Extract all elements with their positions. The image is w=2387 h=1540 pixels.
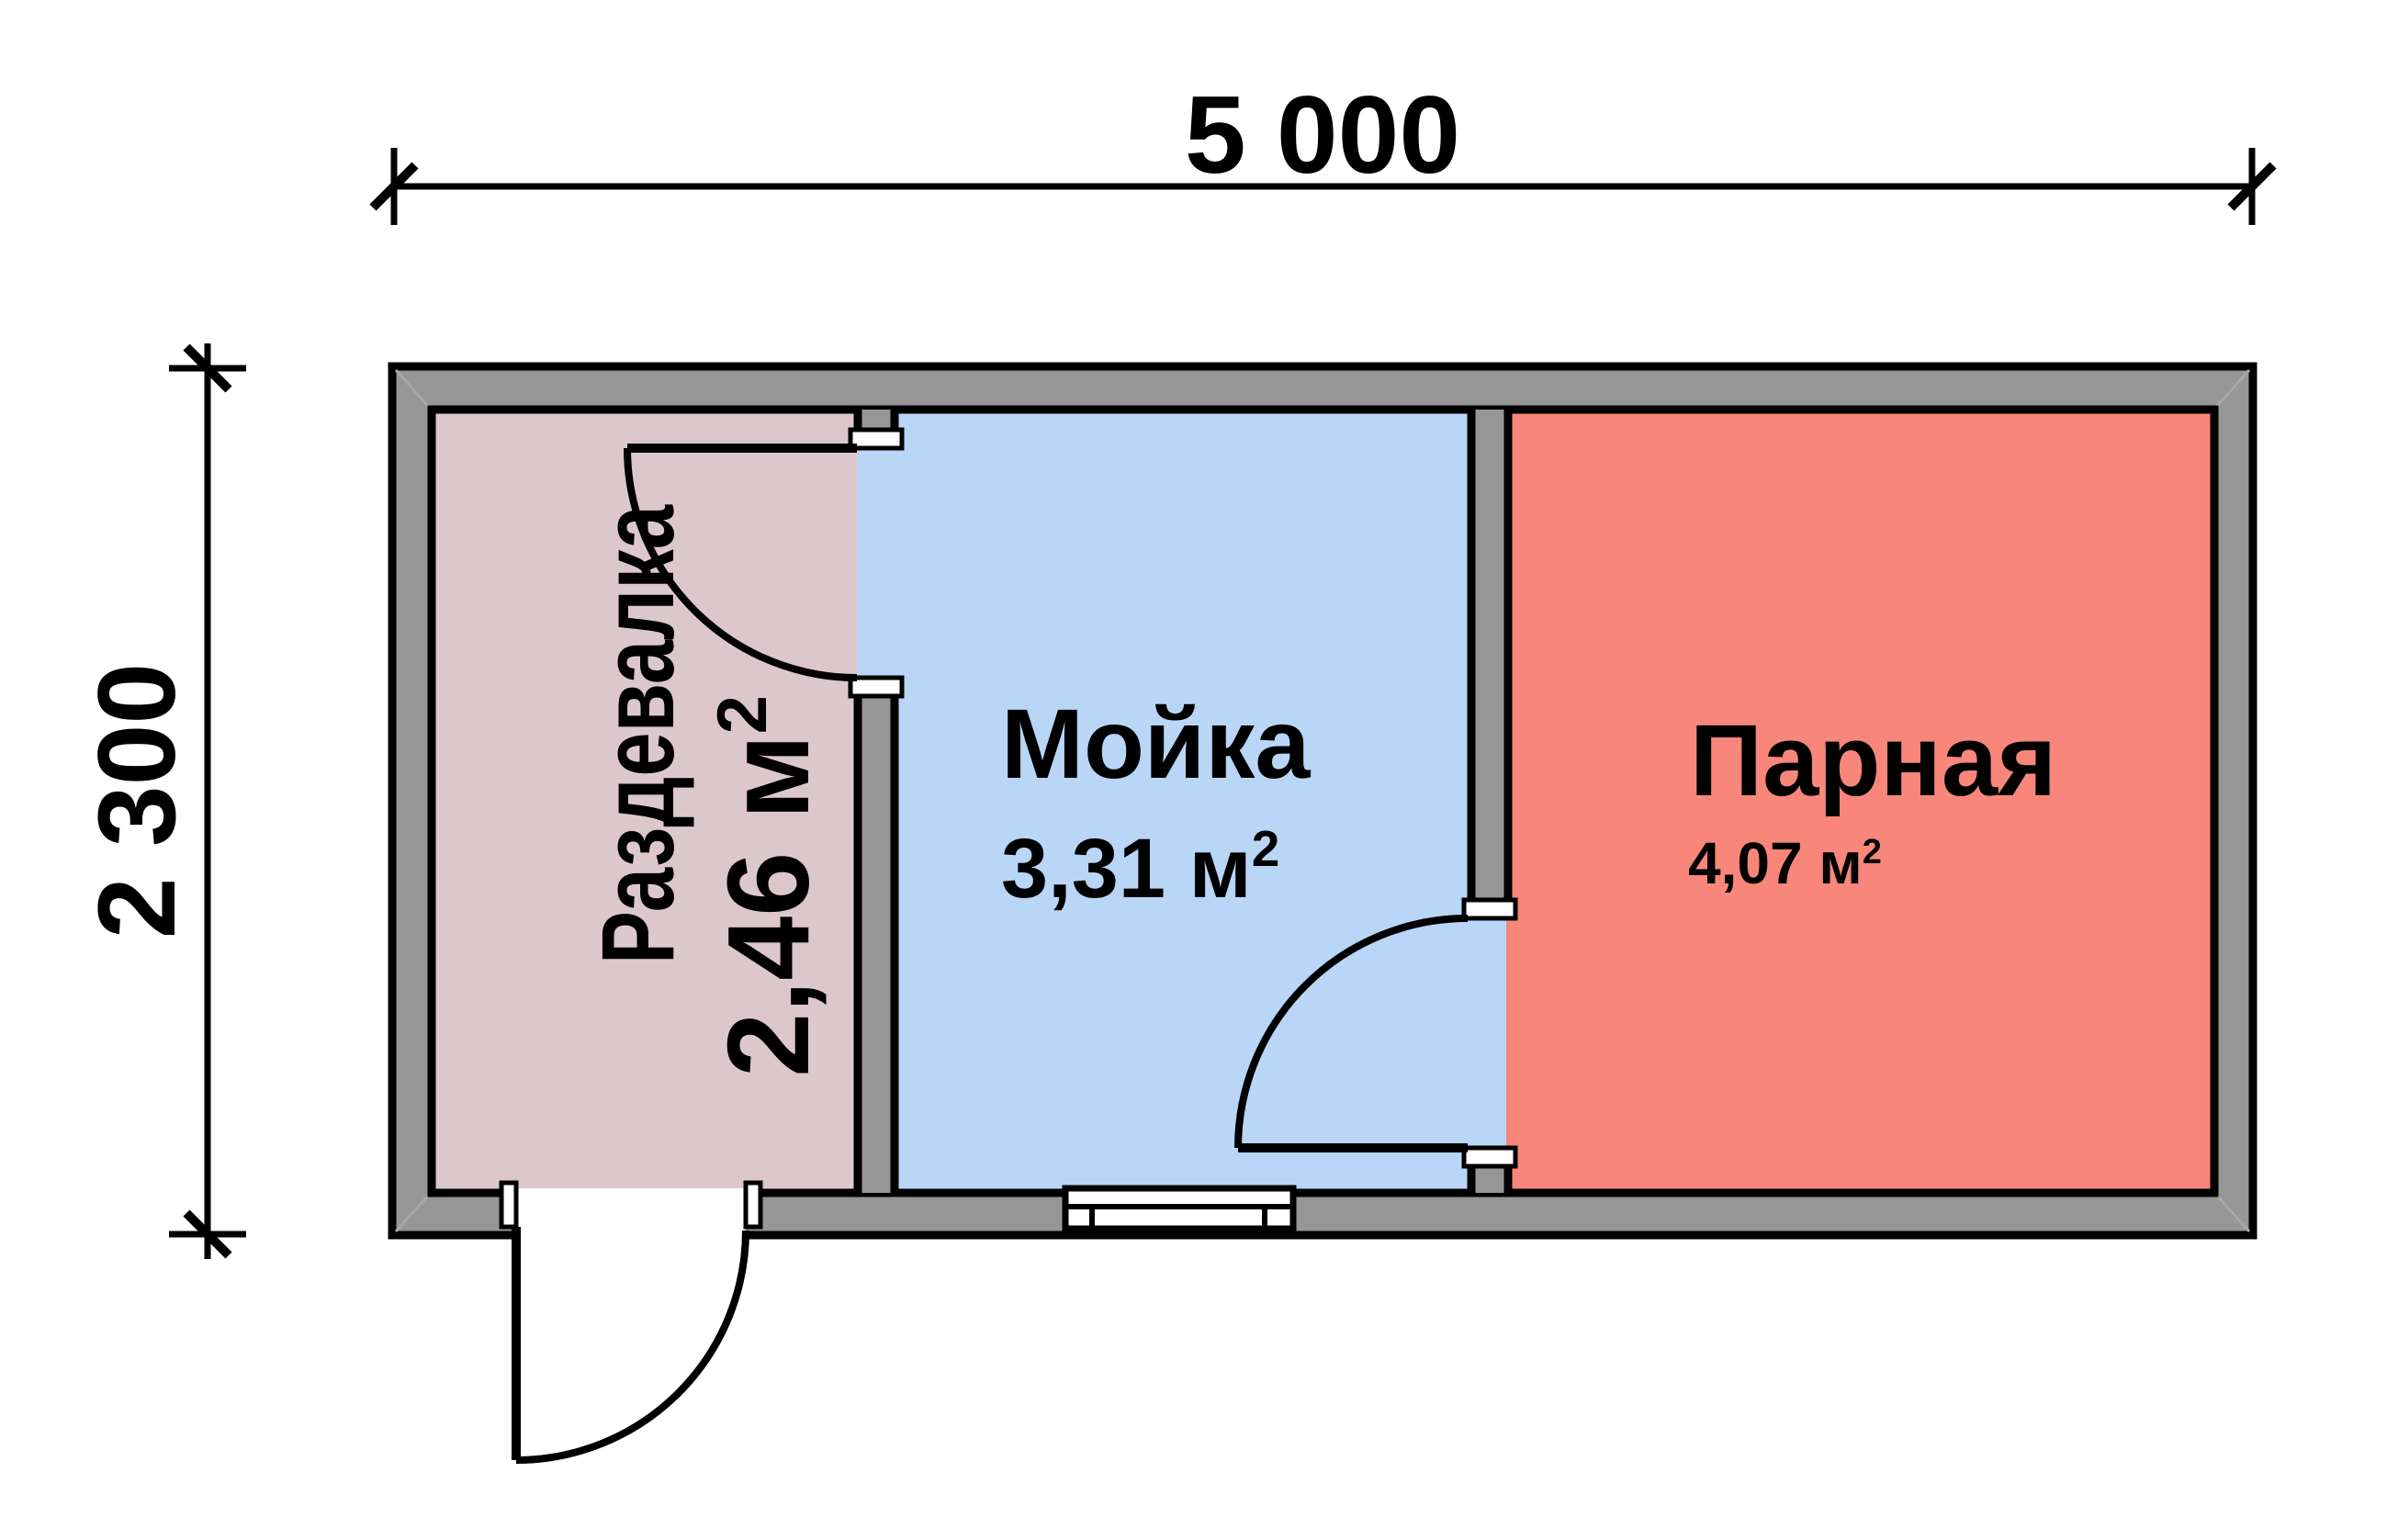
door-jamb <box>746 1183 760 1227</box>
door-jamb <box>850 678 902 696</box>
door-jamb <box>1464 1148 1515 1166</box>
dimension-width-label: 5 000 <box>1185 73 1460 197</box>
room-steam-area-value: 4,07 м <box>1688 830 1863 896</box>
dimension-height-label: 2 300 <box>75 663 198 939</box>
room-dressing-area: 2,46 м2 <box>704 695 833 1077</box>
room-dressing-area-superscript: 2 <box>704 695 782 734</box>
room-steam-name: Парная <box>1690 704 2056 817</box>
wall-opening <box>516 1188 746 1242</box>
door-jamb <box>1464 900 1515 918</box>
bathhouse-floor-plan: 5 000 2 300 <box>0 0 2387 1535</box>
room-washing-floor <box>857 410 1506 1193</box>
room-dressing-name: Раздевалка <box>580 504 695 964</box>
window <box>1065 1188 1293 1229</box>
room-washing-name: Мойка <box>1001 688 1311 799</box>
room-dressing-area-value: 2,46 м <box>704 734 833 1076</box>
room-washing-area: 3,31 м2 <box>1001 820 1279 916</box>
door-jamb <box>501 1183 516 1227</box>
room-steam-area: 4,07 м2 <box>1688 830 1882 896</box>
room-steam-area-superscript: 2 <box>1863 833 1882 871</box>
room-washing-area-superscript: 2 <box>1252 820 1280 877</box>
room-washing-area-value: 3,31 м <box>1001 822 1252 916</box>
door-jamb <box>850 430 902 448</box>
floor-plan-page: 5 000 2 300 <box>0 0 2387 1535</box>
